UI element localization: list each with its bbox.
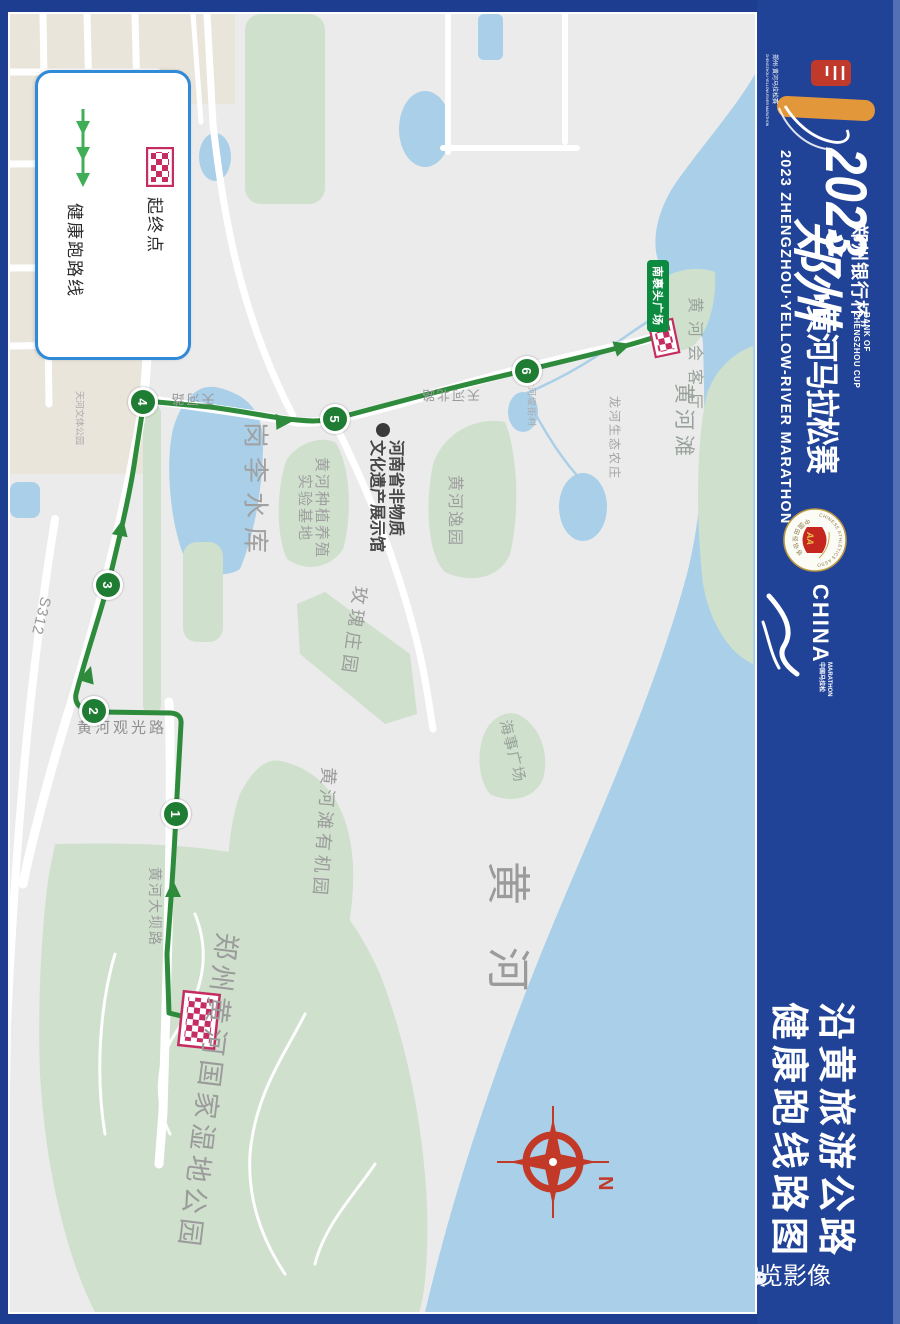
label-tianhe-north-road: 天河北路 [420, 387, 480, 406]
china-sub-cn: 中国马拉松 [816, 662, 824, 697]
label-heritage-hall-line1: 河南省非物质 [386, 440, 405, 552]
china-marathon-logo: CHINA MARATHON 中国马拉松 [757, 584, 847, 694]
label-planting-base: 黄河种植养殖 实验基地 [296, 457, 330, 559]
title-marathon-en: 2023 ZHENGZHOU·YELLOW-RIVER MARATHON [777, 150, 793, 525]
cup-en-line1: BANK OF [861, 312, 871, 388]
title-marathon-cn: ·黄河马拉松赛 [800, 296, 849, 473]
legend-flag-icon [146, 147, 174, 187]
checkpoint-1: 1 [161, 799, 191, 829]
china-subtext: MARATHON 中国马拉松 [816, 662, 833, 697]
china-sub-marathon: MARATHON [825, 662, 833, 697]
label-planting-base-line1: 黄河种植养殖 [313, 457, 330, 559]
label-gangli-reservoir: 岗李水库 [239, 422, 276, 562]
legend-route-icon [72, 107, 94, 195]
event-logo: 郑州·黄河马拉松赛 ZHENGZHOU·YELLOW-RIVER MARATHO… [763, 46, 881, 158]
label-dam-road: 黄河大坝路 [145, 867, 165, 947]
nanguotou-square-badge: 南裹头广场 [647, 260, 669, 332]
legend-start-end-label: 起终点 [144, 197, 169, 254]
checkpoint-2: 2 [79, 696, 109, 726]
cup-en-line2: ZHENGZHOU CUP [850, 312, 860, 388]
poster-title-line1: 沿黄旅游公路 [812, 1002, 867, 1260]
swoosh-stroke-1 [769, 596, 797, 674]
label-sports-park: 天河文体公园 [74, 391, 87, 445]
label-river-beach: 黄河滩 [670, 383, 700, 461]
logo-brush [776, 95, 875, 121]
label-planting-base-line2: 实验基地 [296, 457, 313, 559]
heritage-hall-poi-dot [376, 423, 390, 437]
china-swoosh [759, 592, 807, 688]
label-heritage-hall: 河南省非物质 文化遗产展示馆 [367, 440, 405, 552]
label-longhe-farm: 龙河生态农庄 [607, 396, 624, 480]
yellow-river [425, 74, 755, 1312]
china-text: CHINA [807, 584, 833, 664]
checkpoint-4: 4 [128, 387, 158, 417]
legend-route-label: 健康跑路线 [64, 203, 89, 298]
cup-name-en: BANK OF ZHENGZHOU CUP [850, 312, 871, 388]
poster-title-line2: 健康跑线路图 [765, 1002, 820, 1260]
checkpoint-3: 3 [93, 570, 123, 600]
route-map: N 南裹头广场 黄河会客厅 黄河滩 龙河生态农庄 大河堤街村 天河北路 黄河 岗… [8, 12, 757, 1314]
label-tianhe-road: 天河路 [169, 391, 214, 410]
logo-seal [811, 60, 851, 86]
label-yellow-river: 黄河 [480, 861, 544, 1033]
caa-badge: CHINESE ATHLETICS ASSOCIATION 中国田径协会 AA [781, 506, 849, 574]
legend-box: 起终点 健康跑路线 [35, 70, 191, 360]
title-sidebar: 郑州·黄河马拉松赛 ZHENGZHOU·YELLOW-RIVER MARATHO… [757, 0, 893, 1324]
edge-strip [893, 0, 900, 1324]
label-heritage-hall-line2: 文化遗产展示馆 [367, 440, 386, 552]
rotated-poster: 郑州·黄河马拉松赛 ZHENGZHOU·YELLOW-RIVER MARATHO… [0, 0, 900, 1324]
caa-flag-aa: AA [805, 531, 815, 545]
watermark: 豫览影像 [735, 1255, 895, 1291]
logo-micro-cn: 郑州·黄河马拉松赛 [771, 54, 779, 104]
swoosh-stroke-2 [763, 622, 779, 668]
logo-micro-en: ZHENGZHOU·YELLOW-RIVER MARATHON [765, 54, 769, 127]
yiyuan-area [429, 421, 517, 578]
label-yiyuan: 黄河逸园 [445, 475, 469, 547]
checkpoint-6: 6 [512, 356, 542, 386]
poster-page: 郑州·黄河马拉松赛 ZHENGZHOU·YELLOW-RIVER MARATHO… [0, 0, 900, 1324]
checkpoint-5: 5 [320, 404, 350, 434]
compass-n-label: N [594, 1176, 616, 1190]
